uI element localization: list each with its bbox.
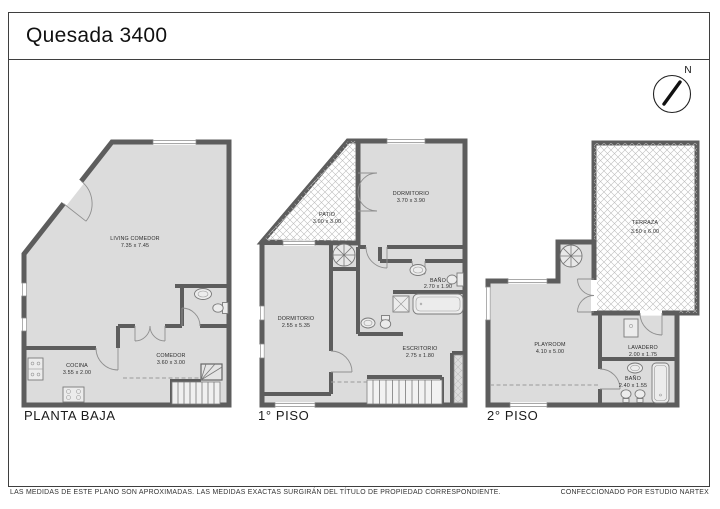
shower-icon	[393, 296, 409, 312]
room-label-dormitorio-1: DORMITORIO 3.70 x 3.90	[393, 191, 429, 204]
compass-icon: N	[648, 60, 704, 116]
room-label-escritorio: ESCRITORIO 2.75 x 1.80	[403, 346, 438, 359]
bathtub-icon	[413, 294, 463, 314]
stove-icon	[63, 387, 84, 402]
wc-sink-icon	[195, 289, 212, 300]
floor-plan-planta-baja: LIVING COMEDOR 7.35 x 7.45 COCINA 3.55 x…	[20, 136, 235, 416]
svg-text:PATIO: PATIO	[319, 212, 335, 218]
floor-plan-primer-piso: PATIO 3.00 x 3.00 DORMITORIO 3.70 x 3.90…	[255, 136, 470, 416]
svg-text:2.75 x 1.80: 2.75 x 1.80	[406, 353, 434, 359]
svg-text:3.00 x 3.00: 3.00 x 3.00	[313, 219, 341, 225]
second-wc-sink-icon	[361, 318, 375, 328]
svg-text:3.70 x 3.90: 3.70 x 3.90	[397, 198, 425, 204]
svg-text:BAÑO: BAÑO	[625, 375, 641, 382]
room-label-playroom: PLAYROOM 4.10 x 5.00	[534, 342, 566, 355]
svg-text:DORMITORIO: DORMITORIO	[278, 316, 314, 322]
bathtub-icon	[652, 363, 669, 403]
kitchen-sink-icon	[28, 358, 43, 380]
spiral-staircase-icon	[333, 244, 355, 266]
svg-text:3.55 x 2.00: 3.55 x 2.00	[63, 370, 91, 376]
svg-text:TERRAZA: TERRAZA	[632, 220, 658, 226]
svg-text:LIVING COMEDOR: LIVING COMEDOR	[110, 236, 159, 242]
page-title: Quesada 3400	[26, 24, 167, 48]
title-divider	[8, 59, 709, 60]
svg-text:2.55 x 5.35: 2.55 x 5.35	[282, 323, 310, 329]
bathroom-sink-icon	[628, 363, 643, 373]
svg-text:ESCRITORIO: ESCRITORIO	[403, 346, 438, 352]
svg-text:COCINA: COCINA	[66, 363, 88, 369]
balcony-hatched-strip	[454, 355, 463, 403]
svg-text:2.00 x 1.75: 2.00 x 1.75	[629, 352, 657, 358]
footer-disclaimer: LAS MEDIDAS DE ESTE PLANO SON APROXIMADA…	[10, 489, 501, 496]
floor-plan-segundo-piso: TERRAZA 3.50 x 6.00 PLAYROOM 4.10 x 5.00…	[485, 136, 700, 416]
bathroom-sink-icon	[410, 265, 426, 276]
svg-text:4.10 x 5.00: 4.10 x 5.00	[536, 349, 564, 355]
svg-text:3.50 x 6.00: 3.50 x 6.00	[631, 229, 659, 235]
room-label-cocina: COCINA 3.55 x 2.00	[63, 363, 91, 376]
svg-text:LAVADERO: LAVADERO	[628, 345, 658, 351]
svg-text:2.40 x 1.55: 2.40 x 1.55	[619, 383, 647, 389]
washing-machine-icon	[624, 319, 638, 337]
room-label-lavadero: LAVADERO 2.00 x 1.75	[628, 345, 658, 358]
svg-text:7.35 x 7.45: 7.35 x 7.45	[121, 243, 149, 249]
patio-crosshatch	[262, 141, 358, 243]
floor-outline	[262, 141, 465, 405]
room-label-comedor: COMEDOR 3.60 x 3.00	[156, 353, 185, 366]
floor-outline	[24, 142, 229, 405]
svg-text:BAÑO: BAÑO	[430, 277, 446, 284]
svg-text:2.70 x 1.90: 2.70 x 1.90	[424, 284, 452, 290]
terrace-crosshatch	[594, 143, 697, 313]
second-wc-toilet-icon	[380, 316, 390, 329]
footer-credit: CONFECCIONADO POR ESTUDIO NARTEX	[561, 489, 709, 496]
svg-text:DORMITORIO: DORMITORIO	[393, 191, 429, 197]
floor-plan-sheet: Quesada 3400 N	[0, 0, 720, 509]
plan-title-primer-piso: 1° PISO	[258, 408, 309, 423]
spiral-staircase-icon	[560, 245, 582, 267]
svg-text:PLAYROOM: PLAYROOM	[534, 342, 566, 348]
svg-text:COMEDOR: COMEDOR	[156, 353, 185, 359]
room-label-dormitorio-2: DORMITORIO 2.55 x 5.35	[278, 316, 314, 329]
plan-title-segundo-piso: 2° PISO	[487, 408, 538, 423]
stairs-icon	[367, 380, 442, 404]
compass-north-label: N	[684, 65, 691, 76]
plan-title-planta-baja: PLANTA BAJA	[24, 408, 116, 423]
wc-toilet-icon	[213, 303, 228, 314]
svg-text:3.60 x 3.00: 3.60 x 3.00	[157, 360, 185, 366]
